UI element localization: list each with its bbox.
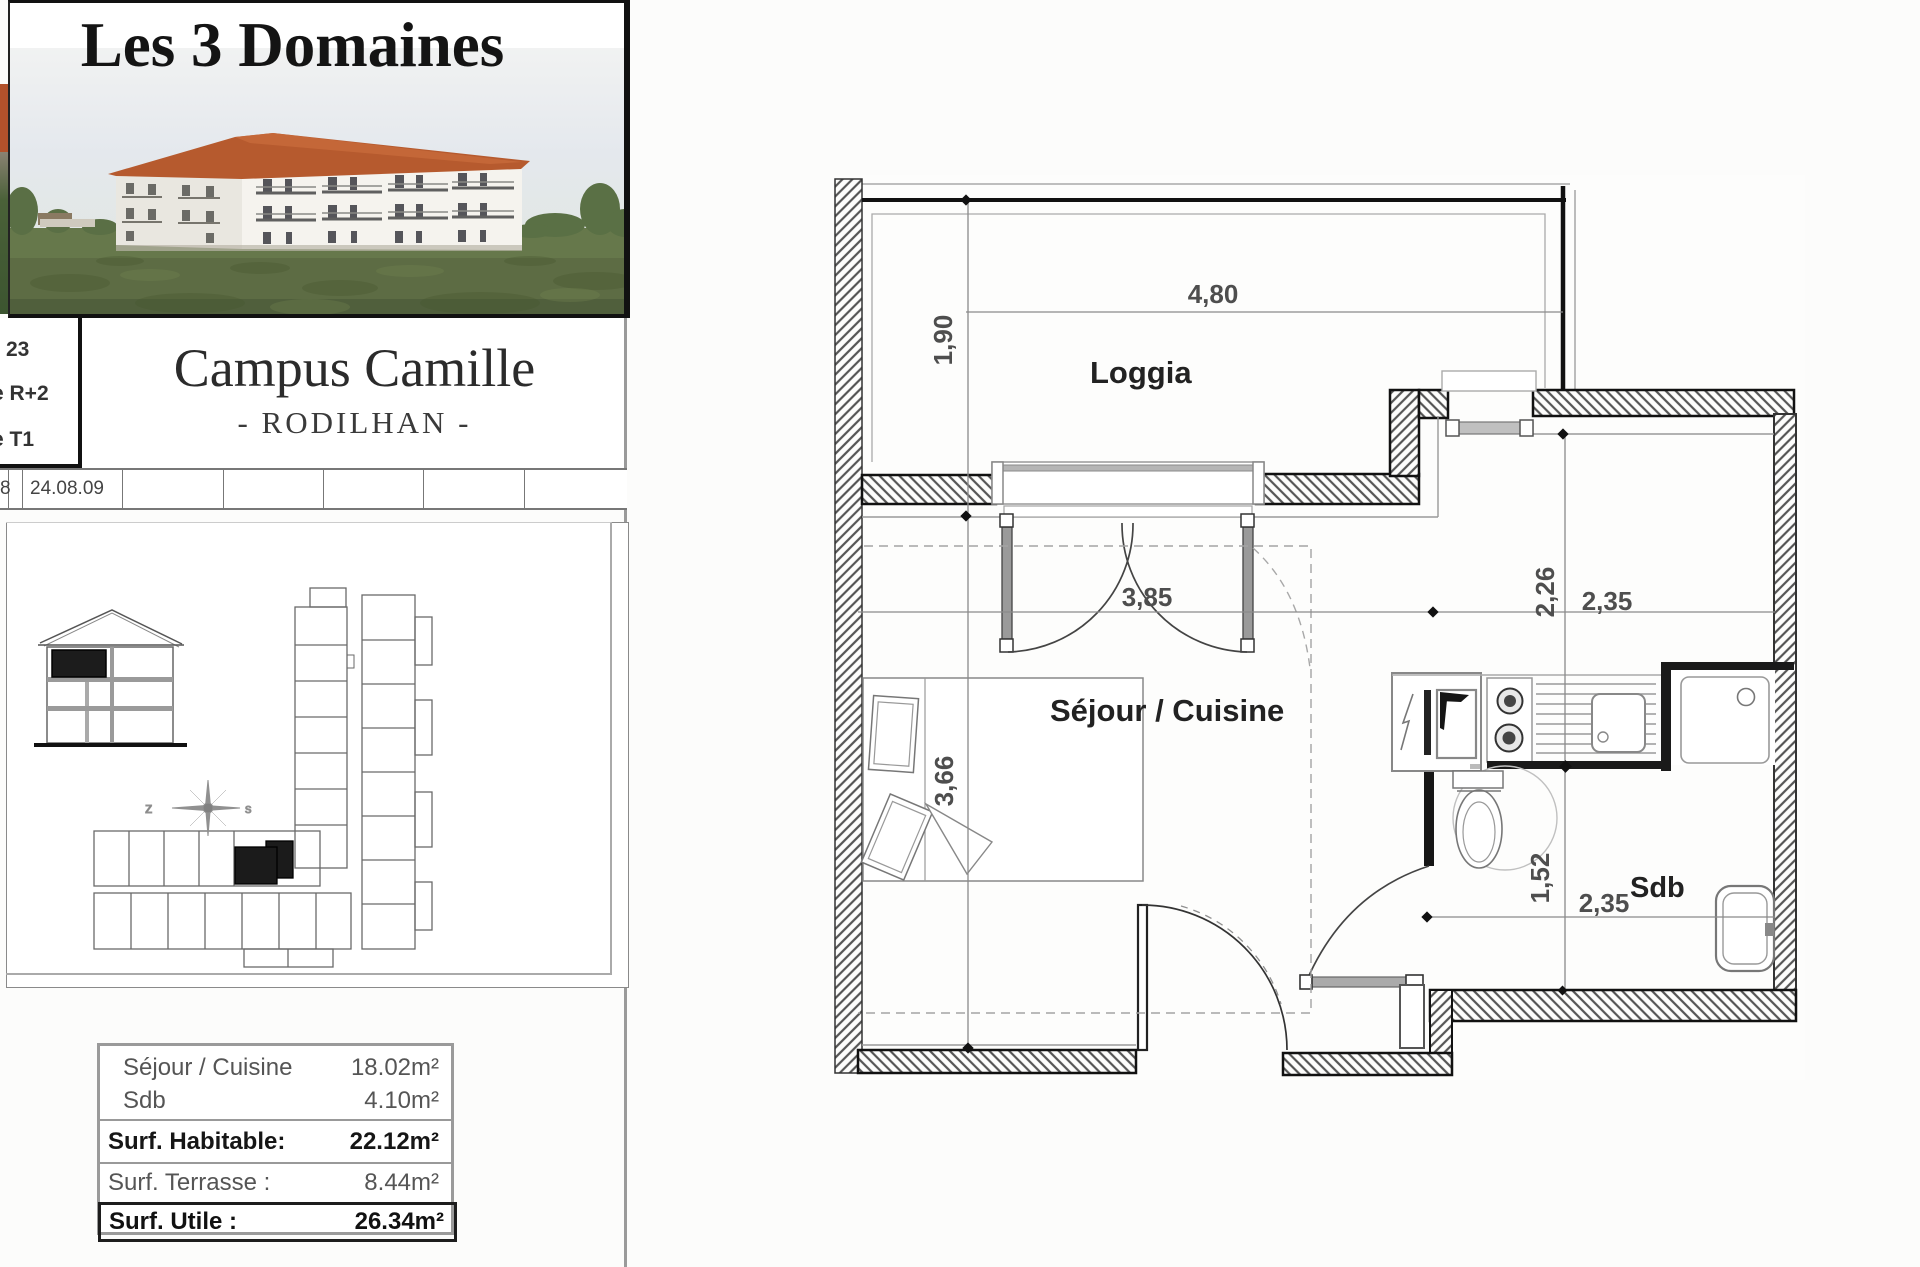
svg-text:3,85: 3,85 (1122, 582, 1173, 612)
svg-text:1,90: 1,90 (928, 315, 958, 366)
svg-text:3,66: 3,66 (929, 756, 959, 807)
svg-text:2,35: 2,35 (1579, 888, 1630, 918)
svg-text:2,35: 2,35 (1582, 586, 1633, 616)
svg-text:4,80: 4,80 (1188, 279, 1239, 309)
svg-text:2,26: 2,26 (1530, 567, 1560, 618)
svg-text:Loggia: Loggia (1090, 355, 1192, 390)
svg-text:Sdb: Sdb (1630, 872, 1685, 904)
svg-text:1,52: 1,52 (1525, 853, 1555, 904)
svg-text:Séjour / Cuisine: Séjour / Cuisine (1050, 693, 1284, 728)
